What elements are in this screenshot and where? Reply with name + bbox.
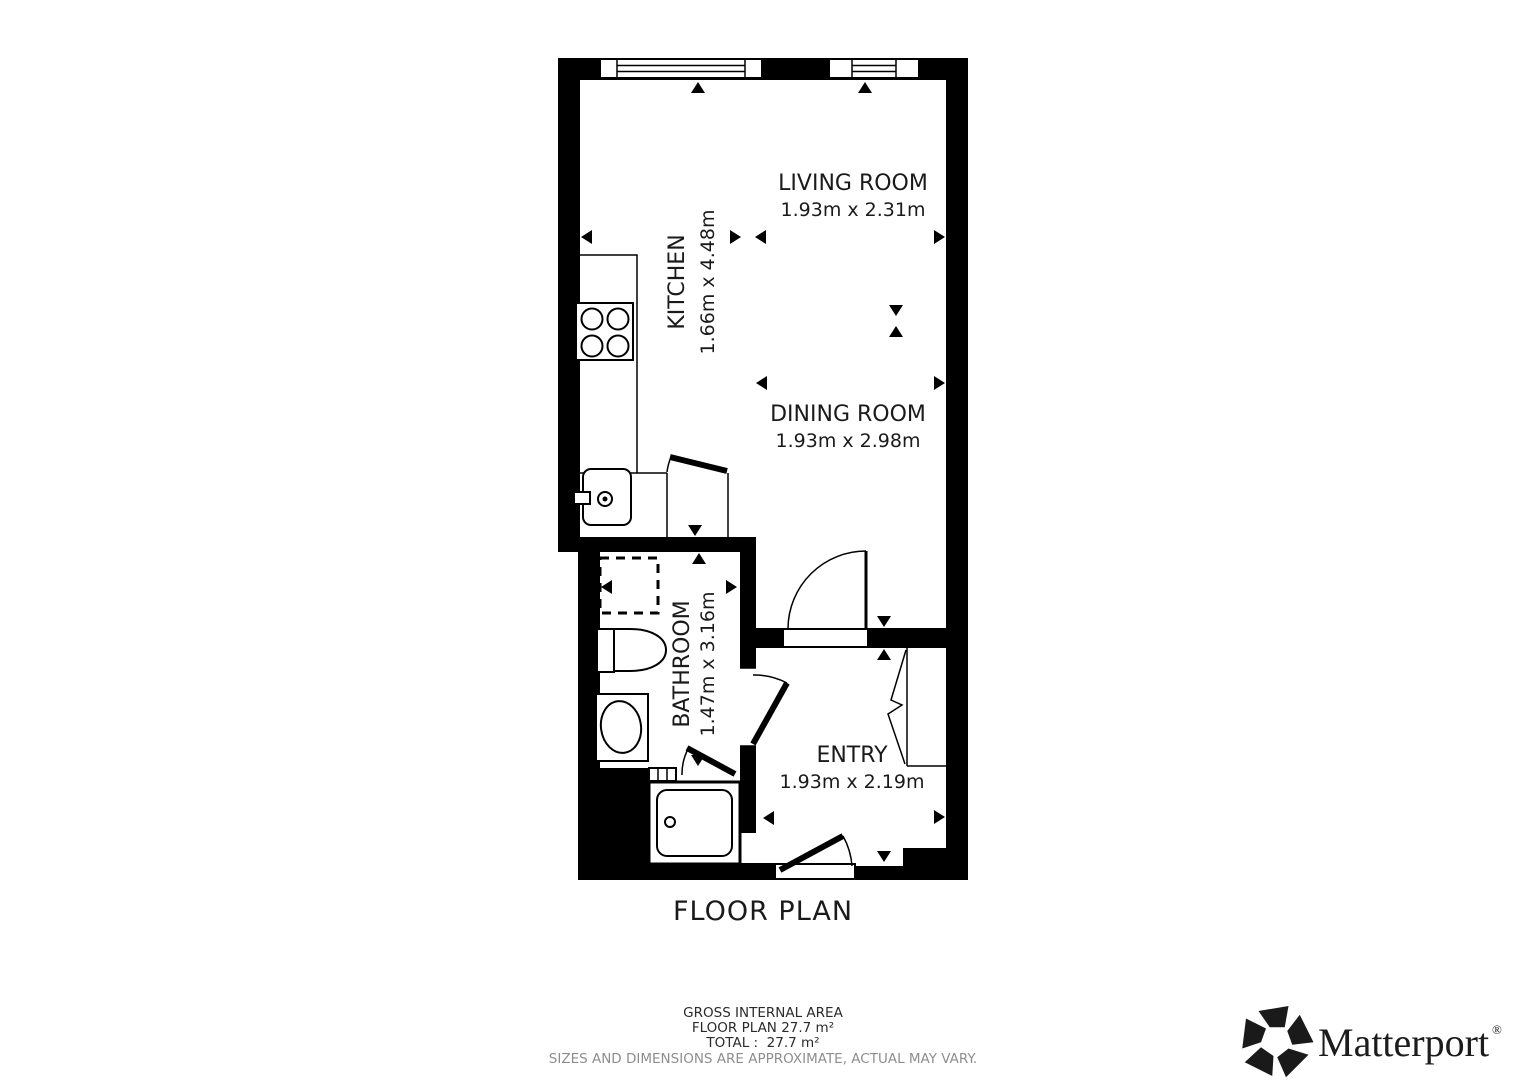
basin-icon <box>596 694 648 761</box>
matterport-pinwheel-icon <box>1242 1006 1313 1077</box>
room-dims-dining-room: 1.93m x 2.98m <box>776 430 921 452</box>
footer-gross-internal-area: GROSS INTERNAL AREA <box>683 1005 843 1021</box>
room-dims-living-room: 1.93m x 2.31m <box>781 199 926 221</box>
room-label-kitchen: KITCHEN <box>665 234 690 329</box>
footer-total-area: TOTAL : 27.7 m² <box>705 1035 819 1051</box>
room-dims-bathroom: 1.47m x 3.16m <box>697 592 719 737</box>
shower-icon <box>649 768 740 864</box>
window-icon-kitchen <box>829 59 919 78</box>
matterport-wordmark: Matterport <box>1318 1020 1489 1065</box>
room-dims-kitchen: 1.66m x 4.48m <box>697 210 719 355</box>
room-label-entry: ENTRY <box>816 743 888 768</box>
door-dining-icon <box>783 551 868 647</box>
room-label-dining-room: DINING ROOM <box>770 402 926 427</box>
window-icon-living <box>600 59 762 78</box>
washer-icon <box>574 469 631 525</box>
stove-icon <box>576 303 633 360</box>
floor-plan-page: LIVING ROOM 1.93m x 2.31m KITCHEN 1.66m … <box>0 0 1526 1080</box>
floor-plan-svg: LIVING ROOM 1.93m x 2.31m KITCHEN 1.66m … <box>0 0 1526 1080</box>
kitchen-counter-icon <box>580 255 667 473</box>
footer-area: GROSS INTERNAL AREA FLOOR PLAN 27.7 m² T… <box>549 1005 977 1067</box>
matterport-logo: Matterport ® <box>1242 1006 1502 1077</box>
room-label-living-room: LIVING ROOM <box>778 171 928 196</box>
registered-mark: ® <box>1492 1022 1502 1037</box>
room-dims-entry: 1.93m x 2.19m <box>780 771 925 793</box>
door-shower-icon <box>682 748 735 775</box>
toilet-icon <box>597 629 666 672</box>
plan-title: FLOOR PLAN <box>673 896 853 927</box>
footer-disclaimer: SIZES AND DIMENSIONS ARE APPROXIMATE, AC… <box>549 1051 977 1067</box>
room-label-bathroom: BATHROOM <box>670 600 695 727</box>
door-entry-icon <box>775 836 855 879</box>
footer-floor-plan-area: FLOOR PLAN 27.7 m² <box>692 1020 834 1036</box>
closet-bifold-icon <box>888 648 946 766</box>
door-hall-icon <box>740 668 787 746</box>
